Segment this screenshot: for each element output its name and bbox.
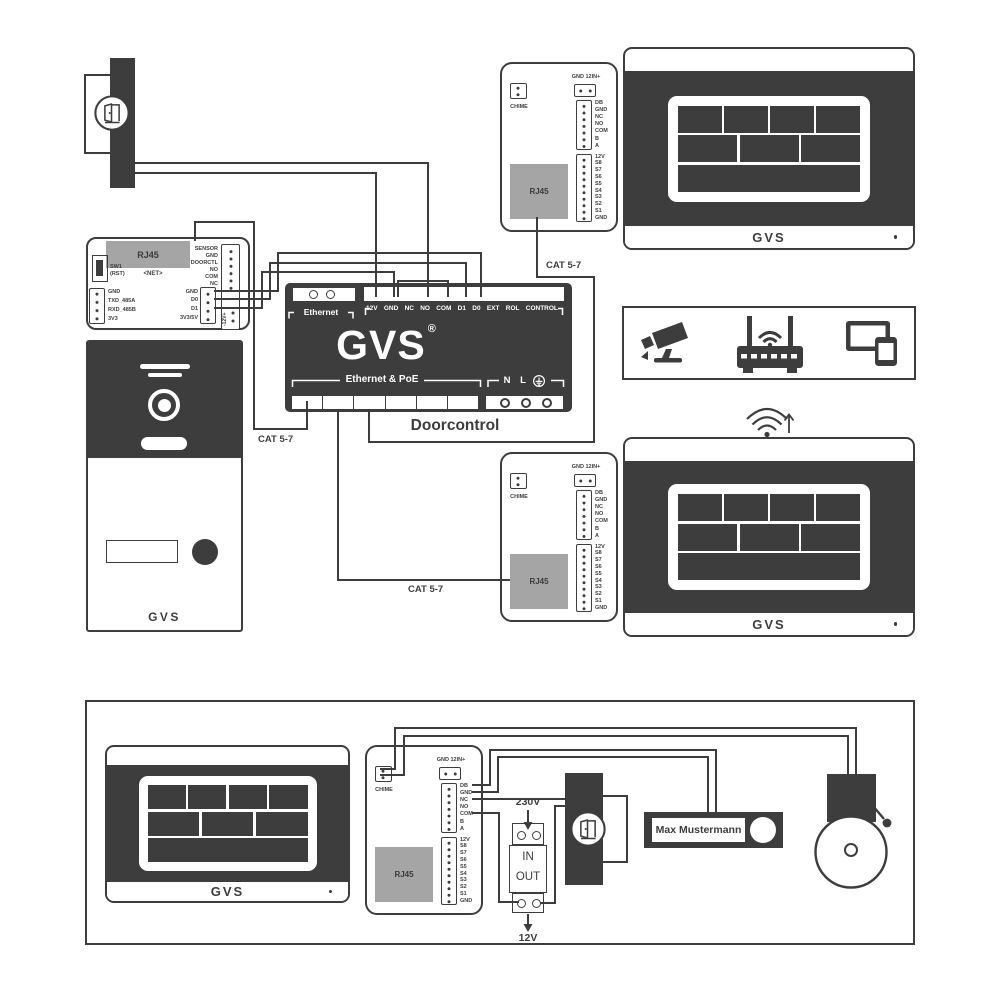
bus-connector: [576, 490, 592, 540]
data-connector: [200, 287, 216, 324]
cable-label-cat: CAT 5-7: [408, 585, 443, 595]
pin-label: COM: [595, 129, 619, 135]
pin-label: S6: [460, 858, 484, 864]
indoor-monitor-1: GVS: [623, 47, 915, 250]
pin-label: A: [595, 534, 619, 540]
io-pin-labels: SENSOR GND DOORCTL NO COM NC: [174, 246, 218, 288]
monitor-io-box-1: CHIME GND 12IN+ DB GND NC NO COM B A 12V…: [500, 62, 618, 232]
pin-label: S4: [595, 189, 619, 195]
pin-label: S1: [460, 892, 484, 898]
door-lock-strike-bar: [110, 58, 135, 188]
pin-label: 12V: [595, 545, 619, 551]
wiring-diagram: RJ45 <NET> SW1 (RST) GND TXD_485A RXD_48…: [0, 0, 1000, 1000]
ethernet-port-block: [292, 287, 356, 302]
rj45-port: RJ45: [375, 847, 433, 902]
pin-label: GND: [186, 290, 198, 296]
pin-label: NC: [405, 306, 414, 316]
pin-label: GND: [460, 899, 484, 905]
pin-label: S8: [595, 551, 619, 557]
pin-label: B: [595, 527, 619, 533]
pin-label: S8: [595, 161, 619, 167]
tile-grid: [678, 106, 860, 192]
scene-connector: [576, 544, 592, 612]
pin-label: NO: [595, 512, 619, 518]
pin-label: NO: [420, 306, 430, 316]
door-lock-plate: [84, 74, 112, 154]
pin-label: S1: [595, 209, 619, 215]
mic-slot: [141, 437, 187, 450]
pin-label: GND: [595, 108, 619, 114]
smart-devices-box: [622, 306, 916, 380]
pin-dots: [446, 786, 452, 833]
terminal-hole: [517, 831, 526, 840]
pin-label: COM: [436, 306, 451, 316]
chime-connector: [375, 766, 392, 782]
rj45-label: RJ45: [394, 870, 413, 879]
doorcontrol-pin-labels: 12V GND NC NO COM D1 D0 EXT ROL CONTROL: [366, 306, 558, 316]
rj45-port: RJ45: [510, 554, 568, 609]
up-arrow-icon: [785, 415, 794, 434]
pin-label: S5: [595, 572, 619, 578]
power-led: [329, 890, 333, 894]
terminal-slot: [385, 396, 416, 409]
gvs-logo: GVS ®: [300, 322, 472, 368]
tile-grid: [148, 785, 308, 862]
pin-label: S7: [595, 558, 619, 564]
terminal-slot: [353, 396, 384, 409]
terminal-slot: [447, 396, 478, 409]
pin-label: RXD_485B: [108, 308, 150, 314]
pin-label: COM: [595, 519, 619, 525]
pin-label: NO: [595, 122, 619, 128]
pin-dots: [581, 157, 587, 222]
screen-frame: [668, 484, 870, 590]
chime-label: CHIME: [367, 787, 401, 794]
monitor-chin: GVS: [107, 882, 348, 901]
port-hole: [326, 290, 335, 299]
pin-label: A: [595, 144, 619, 150]
monitor-screen: [625, 71, 913, 226]
pin-label: S5: [460, 865, 484, 871]
scene-pin-labels: 12V S8 S7 S6 S5 S4 S3 S2 S1 GND: [595, 544, 619, 612]
psu-out-label: OUT: [509, 872, 547, 884]
ethernet-label: Ethernet: [296, 307, 346, 318]
switch-lever: [96, 260, 103, 276]
pin-label: S4: [460, 872, 484, 878]
rj45-port: RJ45: [510, 164, 568, 219]
doorbell-name-plate: Max Mustermann: [652, 818, 745, 842]
monitor-bezel: [625, 49, 913, 71]
terminal-slot: [416, 396, 447, 409]
doorbell-press-button: [750, 817, 776, 843]
poe-label: Ethernet & PoE: [342, 374, 422, 386]
pin-label: 3V3/5V: [180, 316, 198, 322]
sw1-label: SW1: [110, 265, 122, 271]
pin-label: S3: [595, 195, 619, 201]
pin-label: CONTROL: [526, 306, 558, 316]
pin-dots: [576, 87, 595, 95]
door-lock-plate: [601, 795, 628, 863]
rj45-label: RJ45: [529, 187, 548, 196]
pin-label: S6: [595, 565, 619, 571]
doorbell-button: Max Mustermann: [644, 812, 783, 848]
chime-label: CHIME: [502, 494, 536, 501]
pin-label: DB: [595, 491, 619, 497]
rj45-label: RJ45: [137, 250, 159, 260]
pin-label: GND: [384, 306, 398, 316]
speaker-slot: [148, 373, 182, 377]
monitor-chin: GVS: [625, 613, 913, 635]
screen-frame: [139, 776, 317, 871]
pin-label: GND: [595, 216, 619, 222]
pin-label: S8: [460, 844, 484, 850]
power-connector: [439, 767, 461, 780]
indoor-monitor-3: GVS: [105, 745, 350, 903]
station-body: GVS: [88, 458, 241, 630]
monitor-io-box-3: CHIME GND 12IN+ DB GND NC NO COM B A 12V…: [365, 745, 483, 915]
pin-dots: [94, 290, 100, 321]
pin-label: D1: [458, 306, 466, 316]
pin-label: S2: [595, 592, 619, 598]
pin-dots: [515, 475, 521, 488]
pin-label: GND: [206, 254, 218, 260]
pin-label: DOORCTL: [191, 261, 218, 267]
outdoor-station: GVS: [86, 340, 243, 632]
pin-dots: [576, 477, 595, 485]
pin-dots: [230, 309, 236, 325]
io-connector: -12V+: [221, 244, 240, 330]
terminal-slot: [292, 396, 322, 409]
pin-label: D1: [191, 307, 198, 313]
logo-text: GVS: [336, 325, 426, 366]
cable-label-cat: CAT 5-7: [258, 435, 293, 445]
terminal-hole: [500, 398, 510, 408]
data-pin-labels: GND D0 D1 3V3/5V: [164, 288, 198, 323]
power-in-label: GND 12IN+: [423, 757, 479, 764]
pin-dots: [205, 290, 211, 322]
pin-label: S6: [595, 175, 619, 181]
tile-grid: [678, 494, 860, 580]
bus-pin-labels: DB GND NC NO COM B A: [595, 490, 619, 540]
pin-label: NC: [460, 798, 484, 804]
pin-label: NC: [595, 505, 619, 511]
chime-label: CHIME: [502, 104, 536, 111]
pin-label: A: [460, 827, 484, 833]
pin-label: COM: [205, 275, 218, 281]
pin-dots: [515, 85, 521, 98]
pin-label: B: [460, 820, 484, 826]
pin-dots: [581, 547, 587, 612]
pin-label: S3: [595, 585, 619, 591]
power-connector: [574, 474, 596, 487]
pin-label: B: [595, 137, 619, 143]
pin-dots: [446, 840, 452, 905]
pin-label: 12V: [595, 155, 619, 161]
pin-label: S1: [595, 599, 619, 605]
pin-label: 12V: [366, 306, 378, 316]
sw1-reset-switch: [92, 255, 108, 282]
power-12v-label: -12V+: [223, 298, 228, 326]
scene-connector: [576, 154, 592, 222]
pin-dots: [228, 248, 234, 292]
pin-label: EXT: [487, 306, 500, 316]
mains-l-label: L: [518, 375, 528, 386]
monitor-brand: GVS: [211, 884, 244, 899]
pin-label: D0: [472, 306, 480, 316]
pin-dots: [581, 103, 587, 150]
monitor-io-box-2: CHIME GND 12IN+ DB GND NC NO COM B A 12V…: [500, 452, 618, 622]
doorcontrol-caption: Doorcontrol: [385, 417, 525, 434]
pin-label: S7: [460, 851, 484, 857]
uart-connector: [89, 288, 105, 324]
scene-pin-labels: 12V S8 S7 S6 S5 S4 S3 S2 S1 GND: [460, 837, 484, 905]
wifi-signal-icon: [747, 409, 794, 437]
scene-pin-labels: 12V S8 S7 S6 S5 S4 S3 S2 S1 GND: [595, 154, 619, 222]
power-in-label: GND 12IN+: [558, 74, 614, 81]
station-brand: GVS: [88, 610, 241, 624]
pin-label: NC: [595, 115, 619, 121]
monitor-screen: [625, 461, 913, 613]
bus-connector: [576, 100, 592, 150]
monitor-chin: GVS: [625, 226, 913, 248]
registered-mark: ®: [428, 324, 436, 335]
chime-connector: [510, 83, 527, 99]
pin-label: DB: [595, 101, 619, 107]
camera-lens-icon: [158, 399, 171, 412]
wire-cat-monitor2: [338, 411, 510, 580]
pin-label: ROL: [506, 306, 520, 316]
pin-label: S3: [460, 878, 484, 884]
power-led: [894, 235, 898, 239]
pin-label: GND: [595, 606, 619, 612]
pin-label: TXD_485A: [108, 299, 150, 305]
monitor-brand: GVS: [752, 230, 785, 245]
pin-label: GND: [108, 290, 150, 296]
pin-label: SENSOR: [195, 247, 218, 253]
psu-output-label: 12V: [506, 933, 550, 944]
monitor-screen: [107, 765, 348, 882]
terminal-hole: [532, 831, 541, 840]
pin-label: S7: [595, 168, 619, 174]
pin-dots: [441, 770, 460, 778]
pin-label: S5: [595, 182, 619, 188]
terminal-hole: [517, 899, 526, 908]
speaker-slot: [140, 364, 190, 369]
rj45-label: RJ45: [529, 577, 548, 586]
door-station-module: RJ45 <NET> SW1 (RST) GND TXD_485A RXD_48…: [86, 237, 250, 330]
uart-pin-labels: GND TXD_485A RXD_485B 3V3: [108, 288, 150, 324]
station-head: [88, 342, 241, 458]
pin-label: COM: [460, 812, 484, 818]
cable-label-cat: CAT 5-7: [546, 261, 581, 271]
indoor-monitor-2: GVS: [623, 437, 915, 637]
pin-label: 12V: [460, 838, 484, 844]
bus-connector: [441, 783, 457, 833]
terminal-hole: [542, 398, 552, 408]
monitor-brand: GVS: [752, 617, 785, 632]
rst-label: (RST): [110, 272, 125, 278]
pin-dots: [581, 493, 587, 540]
poe-terminal-block: [290, 394, 480, 411]
pin-label: DB: [460, 784, 484, 790]
door-lock-strike-bar: [565, 773, 603, 885]
pin-dots: [380, 768, 386, 781]
port-hole: [309, 290, 318, 299]
pin-label: D0: [191, 298, 198, 304]
pin-label: S2: [595, 202, 619, 208]
chime-connector: [510, 473, 527, 489]
scene-connector: [441, 837, 457, 905]
power-connector: [574, 84, 596, 97]
pin-label: S4: [595, 579, 619, 585]
monitor-bezel: [625, 439, 913, 461]
pin-label: S2: [460, 885, 484, 891]
bus-pin-labels: DB GND NC NO COM B A: [595, 100, 619, 150]
terminal-hole: [521, 398, 531, 408]
pin-label: NO: [210, 268, 218, 274]
name-window: [106, 540, 178, 563]
call-button: [192, 539, 218, 565]
mains-n-label: N: [502, 375, 512, 386]
screen-frame: [668, 96, 870, 202]
terminal-slot: [322, 396, 353, 409]
terminal-hole: [532, 899, 541, 908]
bus-pin-labels: DB GND NC NO COM B A: [460, 783, 484, 833]
psu-in-label: IN: [509, 852, 547, 864]
net-label: <NET>: [128, 270, 178, 278]
power-led: [894, 622, 898, 626]
power-in-label: GND 12IN+: [558, 464, 614, 471]
io-terminal-block: [363, 286, 565, 302]
pin-label: GND: [460, 791, 484, 797]
pin-label: GND: [595, 498, 619, 504]
monitor-bezel: [107, 747, 348, 765]
pin-label: NO: [460, 805, 484, 811]
psu-input-label: 230V: [506, 797, 550, 808]
pin-label: 3V3: [108, 317, 150, 323]
